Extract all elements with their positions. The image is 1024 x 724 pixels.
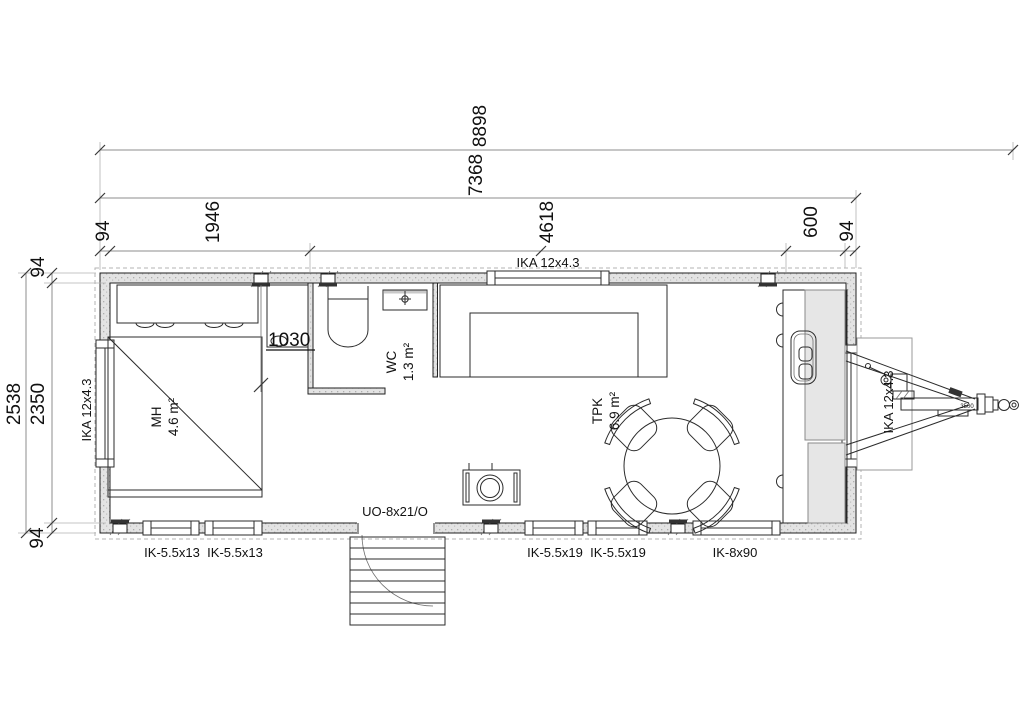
dim-seg-wall-right: 94	[837, 220, 858, 242]
dim-seg-living: 4618	[537, 201, 558, 243]
window-top	[487, 271, 609, 285]
room-wc-area: 1.3 m²	[401, 342, 416, 381]
bottom-window-5-label: IK-8x90	[713, 545, 758, 560]
dim-body-length: 7368	[466, 154, 487, 196]
floor-plan-canvas: 8898 7368 94 1946 4618 600 94 2538 2350 …	[0, 0, 1024, 724]
room-bedroom-code: MH	[149, 407, 164, 428]
coupler-rating-label: 3500	[960, 404, 974, 410]
dim-total-length: 8898	[470, 105, 491, 147]
dim-wall-bottom: 94	[27, 527, 48, 549]
window-right-label: IKA 12x4.3	[881, 371, 896, 434]
window-left	[96, 340, 114, 467]
door-label: UO-8x21/O	[362, 504, 428, 519]
trailer-drawbar	[846, 338, 1019, 470]
bottom-window-3-label: IK-5.5x19	[527, 545, 583, 560]
vent-icon	[668, 519, 688, 535]
room-wc-code: WC	[384, 351, 399, 374]
room-bedroom-area: 4.6 m²	[166, 397, 181, 436]
dim-opening-width: 1030	[268, 330, 310, 351]
entrance-stairs	[350, 537, 445, 625]
dim-seg-bedroom: 1946	[203, 201, 224, 243]
bottom-window-2-label: IK-5.5x13	[207, 545, 263, 560]
floor-plan-drawing: 8898 7368 94 1946 4618 600 94 2538 2350 …	[0, 0, 1024, 724]
dim-seg-kitchen: 600	[801, 206, 822, 238]
entrance-door	[357, 522, 435, 606]
dim-seg-wall-left: 94	[93, 220, 114, 242]
window-left-label: IKA 12x4.3	[79, 379, 94, 442]
dim-height-total: 2538	[4, 383, 25, 425]
dim-height-inner: 2350	[28, 383, 49, 425]
bottom-window-4-label: IK-5.5x19	[590, 545, 646, 560]
dim-wall-top: 94	[28, 256, 49, 278]
vent-icon	[110, 519, 130, 535]
room-living-area: 6.9 m²	[607, 391, 622, 430]
vent-icon	[481, 519, 501, 535]
bottom-window-1-label: IK-5.5x13	[144, 545, 200, 560]
room-living-code: TPK	[590, 398, 605, 424]
window-top-label: IKA 12x4.3	[517, 255, 580, 270]
